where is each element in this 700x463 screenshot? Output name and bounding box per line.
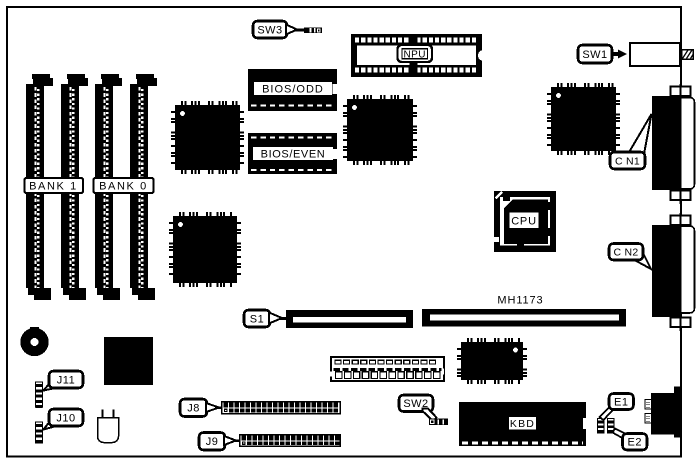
svg-text:BANK 0: BANK 0 <box>99 181 148 193</box>
svg-text:BIOS/EVEN: BIOS/EVEN <box>261 149 326 161</box>
svg-text:J10: J10 <box>56 412 75 424</box>
svg-text:SW3: SW3 <box>257 24 282 36</box>
svg-text:S1: S1 <box>250 313 264 325</box>
svg-text:E1: E1 <box>614 396 628 408</box>
svg-text:C N2: C N2 <box>613 247 638 259</box>
svg-text:J9: J9 <box>206 436 219 448</box>
svg-text:E2: E2 <box>628 437 642 449</box>
svg-text:CPU: CPU <box>511 216 537 228</box>
svg-text:MH1173: MH1173 <box>497 295 543 307</box>
svg-text:NPU: NPU <box>404 50 426 61</box>
svg-text:KBD: KBD <box>510 418 535 430</box>
svg-text:BIOS/ODD: BIOS/ODD <box>262 84 324 96</box>
svg-text:BANK 1: BANK 1 <box>29 181 78 193</box>
svg-text:J8: J8 <box>187 403 200 415</box>
svg-text:C N1: C N1 <box>615 155 640 167</box>
svg-text:SW1: SW1 <box>582 49 607 61</box>
svg-text:J11: J11 <box>57 374 75 386</box>
